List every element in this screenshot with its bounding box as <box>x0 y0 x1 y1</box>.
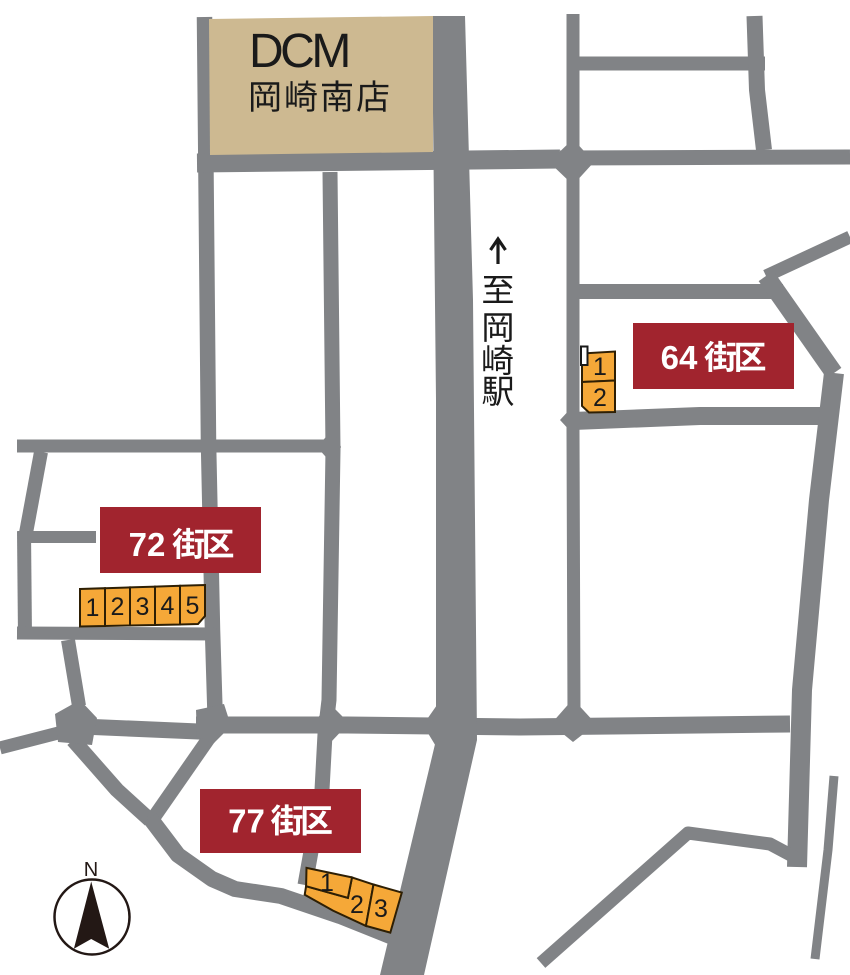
svg-text:N: N <box>84 859 98 881</box>
svg-text:77: 77 <box>228 803 265 840</box>
svg-text:1: 1 <box>320 869 334 897</box>
svg-text:4: 4 <box>161 592 175 620</box>
svg-text:2: 2 <box>593 384 607 412</box>
svg-text:2: 2 <box>350 891 364 919</box>
svg-text:3: 3 <box>136 593 150 621</box>
svg-text:2: 2 <box>111 593 125 621</box>
svg-text:1: 1 <box>86 594 100 622</box>
svg-text:3: 3 <box>374 895 388 923</box>
svg-text:1: 1 <box>593 353 607 381</box>
svg-text:5: 5 <box>186 592 200 620</box>
svg-text:DCM: DCM <box>249 25 348 78</box>
svg-text:64: 64 <box>661 339 698 376</box>
svg-text:72: 72 <box>129 526 166 563</box>
